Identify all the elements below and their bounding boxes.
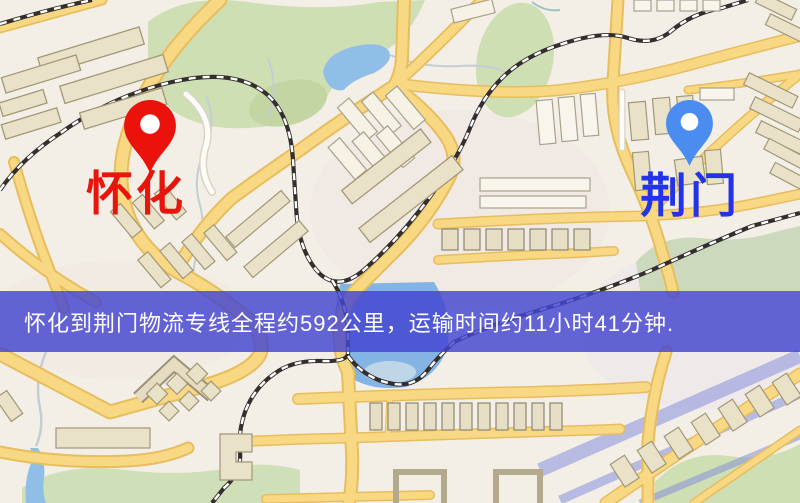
logistics-route-map: 怀化 荆门 怀化到荆门物流专线全程约592公里，运输时间约11小时41分钟.	[0, 0, 800, 503]
map-background	[0, 0, 800, 503]
red-pin-icon	[124, 100, 176, 173]
origin-city-label: 怀化	[86, 172, 186, 219]
destination-city-label: 荆门	[640, 174, 740, 221]
banner-text: 怀化到荆门物流专线全程约592公里，运输时间约11小时41分钟.	[24, 306, 674, 338]
info-banner: 怀化到荆门物流专线全程约592公里，运输时间约11小时41分钟.	[0, 291, 800, 352]
blue-pin-icon	[666, 100, 713, 166]
destination-pin[interactable]	[666, 100, 713, 166]
origin-pin[interactable]	[124, 100, 176, 173]
